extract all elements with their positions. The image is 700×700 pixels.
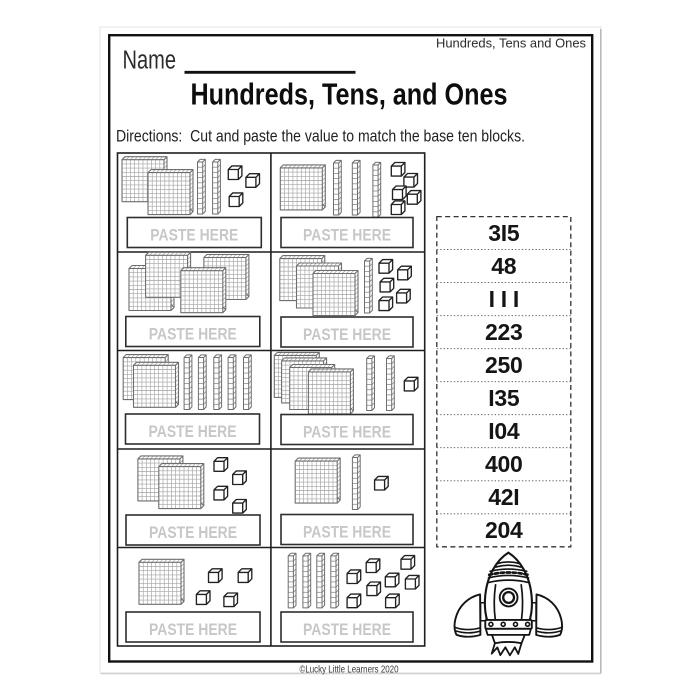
svg-text:PASTE HERE: PASTE HERE (149, 620, 237, 639)
svg-text:250: 250 (485, 352, 522, 378)
svg-text:400: 400 (485, 451, 522, 477)
svg-text:PASTE HERE: PASTE HERE (303, 620, 391, 639)
svg-text:I35: I35 (488, 385, 520, 411)
svg-text:PASTE HERE: PASTE HERE (149, 325, 237, 344)
svg-text:Hundreds, Tens and Ones: Hundreds, Tens and Ones (436, 37, 586, 51)
svg-text:©Lucky Little Learners 2020: ©Lucky Little Learners 2020 (300, 664, 399, 675)
svg-text:PASTE HERE: PASTE HERE (149, 422, 237, 441)
svg-text:PASTE HERE: PASTE HERE (303, 523, 391, 542)
svg-text:223: 223 (485, 319, 522, 345)
svg-text:PASTE HERE: PASTE HERE (303, 423, 391, 442)
svg-text:3I5: 3I5 (488, 220, 520, 246)
svg-text:42I: 42I (488, 484, 519, 510)
svg-text:48: 48 (491, 253, 516, 279)
svg-text:PASTE HERE: PASTE HERE (303, 226, 391, 245)
svg-text:204: 204 (485, 517, 523, 543)
svg-text:PASTE HERE: PASTE HERE (149, 523, 237, 542)
svg-text:Name: Name (123, 47, 177, 75)
svg-text:Directions: Cut and paste the: Directions: Cut and paste the value to m… (116, 126, 525, 145)
svg-text:PASTE HERE: PASTE HERE (150, 226, 238, 245)
svg-text:Hundreds, Tens, and Ones: Hundreds, Tens, and Ones (191, 78, 508, 112)
svg-text:PASTE HERE: PASTE HERE (303, 325, 391, 344)
svg-text:I I I: I I I (489, 286, 519, 312)
svg-text:I04: I04 (488, 418, 520, 444)
